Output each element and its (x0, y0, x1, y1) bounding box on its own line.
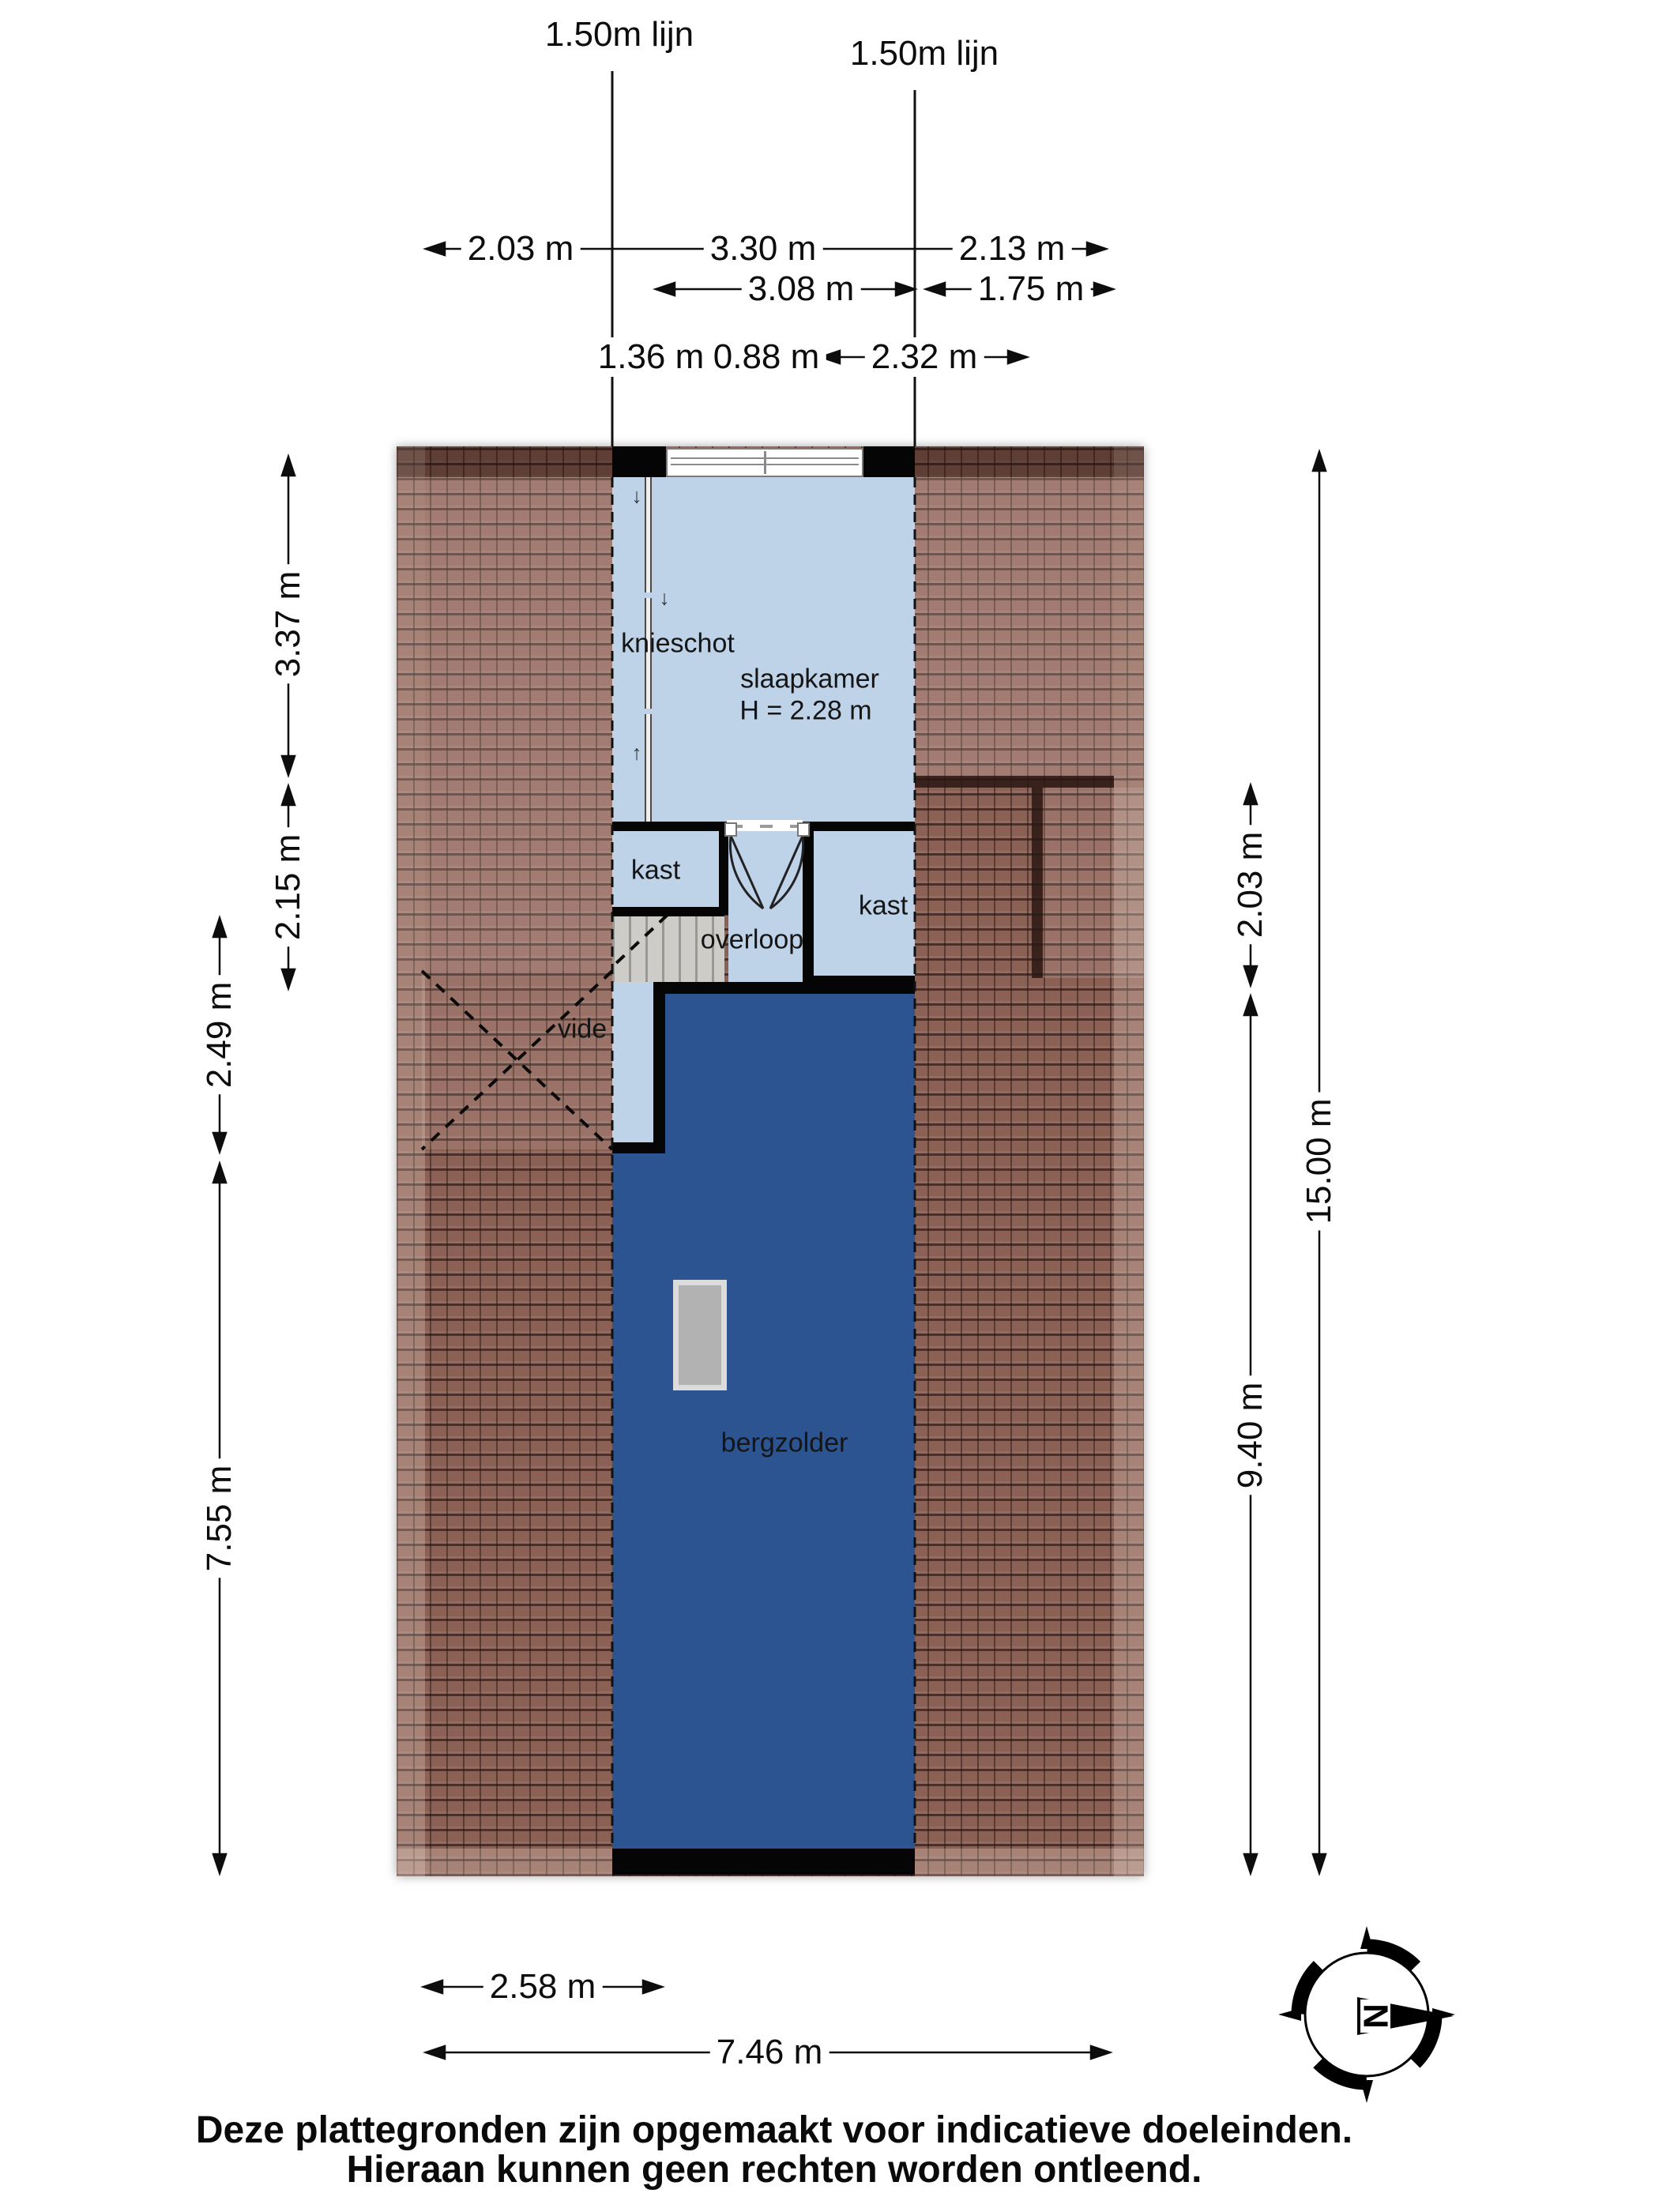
label-150m-lijn-left: 1.50m lijn (545, 15, 694, 55)
dim-right-203: 2.03 m (1231, 826, 1270, 945)
footer-line-2: Hieraan kunnen geen rechten worden ontle… (0, 2150, 1548, 2190)
dim-top-330: 3.30 m (704, 229, 823, 269)
annotation-overlay: N (0, 0, 1659, 2212)
dimension-lines (213, 243, 1326, 2059)
knieschot-arrow-down-icon: ↓ (660, 586, 670, 611)
dim-right-940: 9.40 m (1231, 1376, 1270, 1495)
compass-north-label: N (1356, 2003, 1395, 2029)
label-knieschot: knieschot (621, 629, 735, 660)
footer-disclaimer: Deze plattegronden zijn opgemaakt voor i… (0, 2111, 1548, 2190)
compass: N (1278, 1926, 1455, 2103)
knieschot-arrow-down-icon: ↓ (632, 484, 642, 509)
dim-top-308: 3.08 m (742, 269, 861, 309)
dim-top-232: 2.32 m (865, 337, 984, 377)
knieschot-arrow-up-icon: ↑ (632, 741, 642, 766)
dim-left-755: 7.55 m (200, 1459, 239, 1578)
vide-cross (422, 915, 668, 1149)
dim-top-088: 0.88 m (707, 337, 826, 377)
floorplan-page: N 1.50m lijn 1.50m lijn 2.03 m 3.30 m 2.… (0, 0, 1659, 2212)
dim-bottom-746: 7.46 m (710, 2033, 829, 2072)
dim-top-213: 2.13 m (953, 229, 1072, 269)
dim-top-136: 1.36 m (592, 337, 711, 377)
dim-left-249: 2.49 m (200, 976, 239, 1095)
double-door-symbol (725, 823, 809, 908)
dim-top-203: 2.03 m (461, 229, 581, 269)
compass-tick-bottom (1360, 2080, 1373, 2103)
label-kast-left: kast (631, 856, 680, 886)
label-slaapkamer-height: H = 2.28 m (739, 696, 871, 727)
dim-right-1500: 15.00 m (1300, 1093, 1339, 1231)
footer-line-1: Deze plattegronden zijn opgemaakt voor i… (0, 2111, 1548, 2150)
compass-tick-top (1360, 1926, 1373, 1949)
dim-top-175: 1.75 m (972, 269, 1091, 309)
dim-bottom-258: 2.58 m (483, 1967, 603, 2007)
dim-left-337: 3.37 m (269, 565, 308, 684)
label-slaapkamer: slaapkamer (740, 664, 879, 695)
label-overloop: overloop (701, 925, 803, 956)
label-150m-lijn-right: 1.50m lijn (850, 34, 999, 73)
compass-tick-left (1278, 2008, 1301, 2021)
label-bergzolder: bergzolder (721, 1428, 848, 1459)
label-vide: vide (558, 1014, 607, 1045)
dim-left-215: 2.15 m (269, 828, 308, 947)
label-kast-right: kast (859, 891, 908, 922)
